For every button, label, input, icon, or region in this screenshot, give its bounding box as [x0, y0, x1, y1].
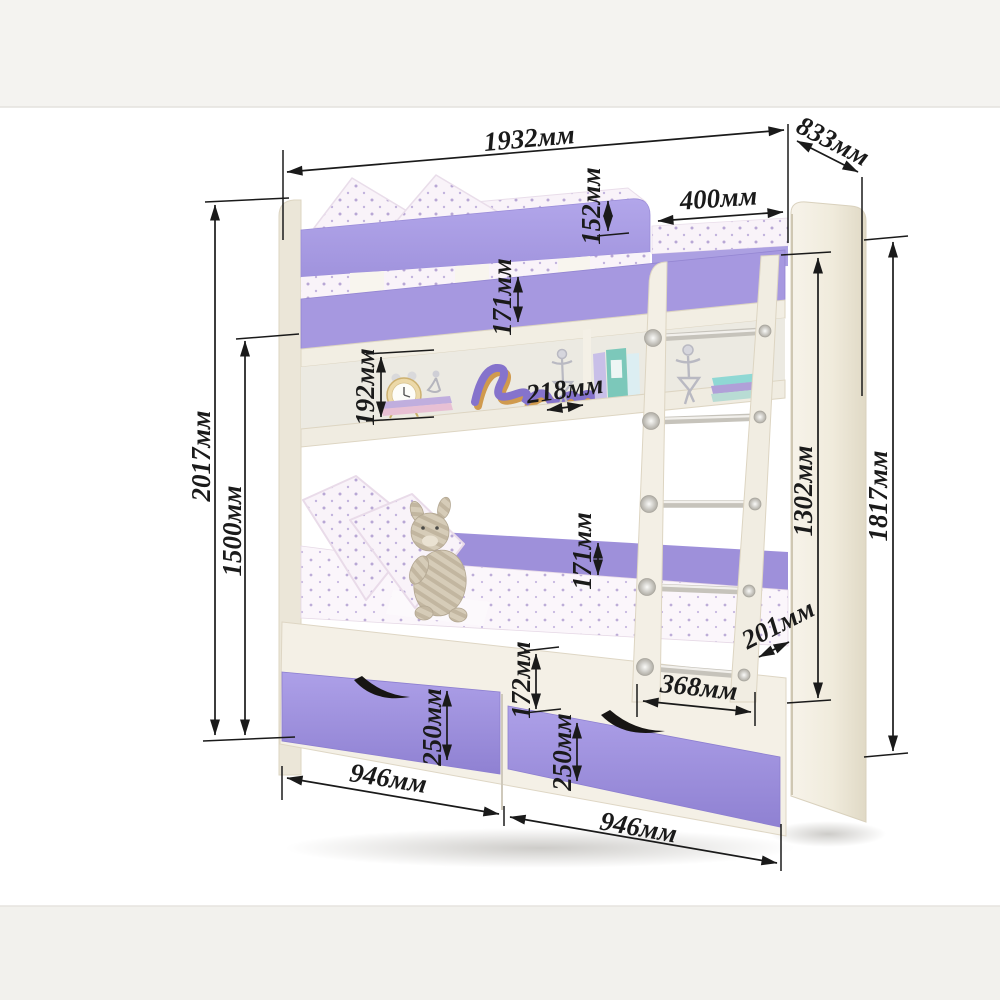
dim-label-250-left: 250мм: [417, 688, 447, 767]
dim-side-panel-height: 1817мм: [863, 236, 908, 757]
dim-label-171-lower: 171мм: [567, 512, 597, 590]
dim-label-400: 400мм: [678, 180, 758, 215]
dim-label-1817: 1817мм: [863, 451, 893, 542]
floor-band-bottom: [0, 906, 1000, 1000]
dim-drawer-right-height: 250мм: [547, 713, 577, 792]
wall-band-top: [0, 0, 1000, 107]
dim-label-250-right: 250мм: [547, 713, 577, 792]
bunk-bed-diagram: 1932мм 833мм 152мм 400мм 171мм 192мм: [0, 0, 1000, 1000]
dim-label-833: 833мм: [792, 110, 875, 172]
dim-label-152: 152мм: [576, 167, 606, 245]
column-shadow: [770, 821, 886, 847]
dim-label-1932: 1932мм: [483, 119, 576, 157]
dim-upper-rail-band: 171мм: [487, 258, 518, 336]
floor-shadow: [285, 828, 795, 868]
dim-label-1500: 1500мм: [217, 486, 247, 577]
dim-label-171-upper: 171мм: [487, 258, 517, 336]
dim-lower-rail-band: 171мм: [567, 512, 598, 590]
dim-label-192: 192мм: [350, 348, 380, 426]
rail-slat-1: [350, 271, 384, 294]
dim-label-172: 172мм: [506, 641, 536, 719]
dim-label-1302: 1302мм: [788, 446, 818, 537]
dim-drawer-left-height: 250мм: [417, 688, 447, 767]
diagram-canvas: 1932мм 833мм 152мм 400мм 171мм 192мм: [0, 0, 1000, 1000]
dim-top-gap: 400мм: [658, 180, 783, 221]
dim-label-2017: 2017мм: [186, 411, 216, 503]
